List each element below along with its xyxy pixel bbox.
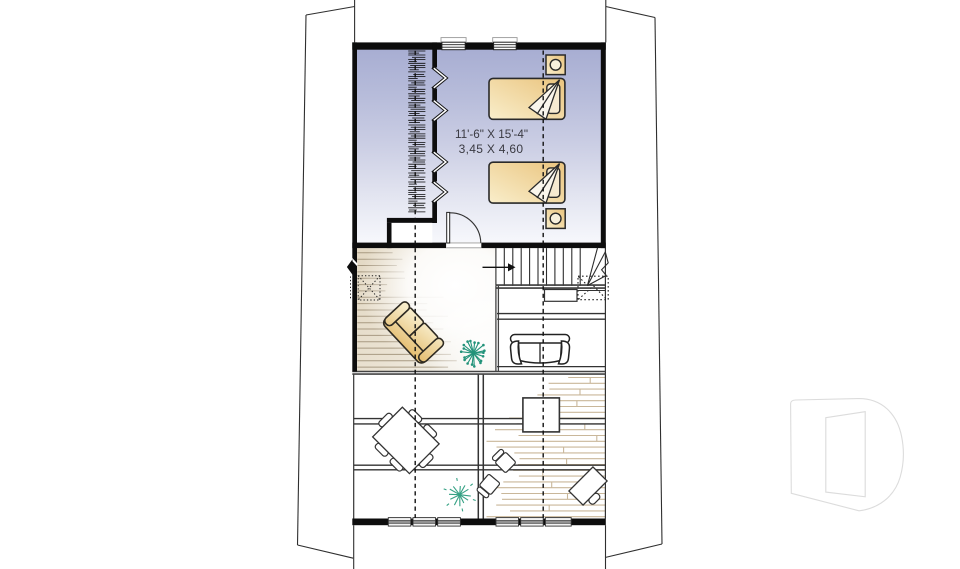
svg-text:3,45 X 4,60: 3,45 X 4,60 — [459, 142, 524, 156]
svg-text:11'-6" X 15'-4": 11'-6" X 15'-4" — [455, 128, 528, 141]
